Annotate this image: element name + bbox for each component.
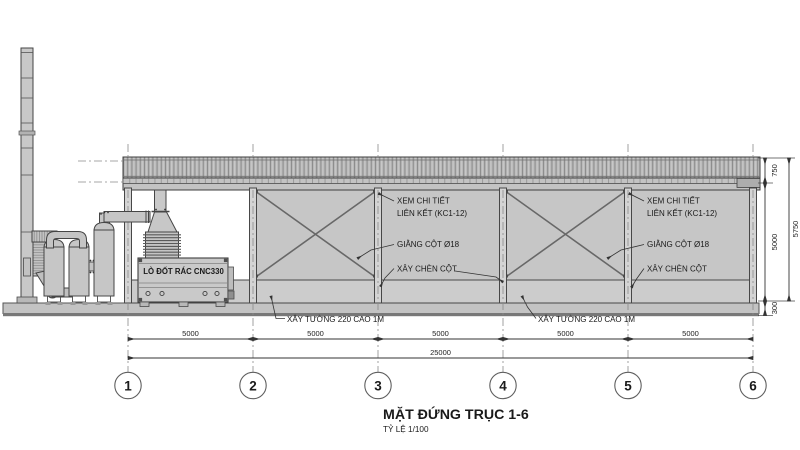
callout-brace: GIẰNG CỘT Ø18: [397, 240, 460, 249]
callout-detail-line2: LIÊN KẾT (KC1-12): [397, 208, 467, 218]
dimension-column-right: 750 5000 300 5750: [758, 158, 800, 316]
callout-low-wall-label: XÂY TƯỜNG 220 CAO 1M: [287, 315, 384, 324]
tank-bridge-pipe: [47, 232, 87, 249]
grid-bubble-5: 5: [624, 379, 632, 394]
grid-bubbles: 1 2 3 4 5 6: [115, 372, 766, 398]
dim-bay-3-4: 5000: [432, 329, 449, 338]
dim-roof-height: 750: [770, 164, 779, 177]
dimension-row-bays: 5000 5000 5000 5000 5000: [128, 329, 753, 339]
callout-detail-line1: XEM CHI TIẾT: [647, 196, 700, 206]
scale-note: TỶ LỆ 1/100: [383, 423, 429, 434]
callout-brace: GIẰNG CỘT Ø18: [647, 240, 710, 249]
dim-plinth-height: 300: [770, 302, 779, 315]
flue-funnel: [148, 212, 177, 232]
grid-bubble-1: 1: [124, 379, 132, 394]
callout-infill: XÂY CHÈN CỘT: [647, 265, 707, 274]
scrubber-tank-1: [44, 240, 64, 306]
scrubber-tank-2: [69, 240, 89, 306]
dim-bay-2-3: 5000: [307, 329, 324, 338]
elevation-drawing: LÒ ĐỐT RÁC CNC330 XEM CHI TIẾT LIÊN KẾT …: [0, 0, 800, 450]
grid-bubble-4: 4: [499, 379, 507, 394]
grid-bubble-2: 2: [249, 379, 257, 394]
drawing-sheet: LÒ ĐỐT RÁC CNC330 XEM CHI TIẾT LIÊN KẾT …: [0, 0, 800, 450]
callout-detail-line1: XEM CHI TIẾT: [397, 196, 450, 206]
chimney-flange: [19, 131, 35, 135]
scrubber-tank-3: [94, 213, 114, 305]
callout-infill: XÂY CHÈN CỘT: [397, 265, 457, 274]
side-attachment: [228, 267, 234, 290]
grid-bubble-6: 6: [749, 379, 757, 394]
heat-exchanger-fins: [146, 232, 179, 258]
grid-bubble-3: 3: [374, 379, 382, 394]
eave-end-cap: [737, 178, 760, 187]
dim-bay-5-6: 5000: [682, 329, 699, 338]
incinerator: LÒ ĐỐT RÁC CNC330: [138, 190, 234, 307]
dim-wall-height: 5000: [770, 234, 779, 251]
dim-bay-4-5: 5000: [557, 329, 574, 338]
dim-bay-1-2: 5000: [182, 329, 199, 338]
chimney-base: [17, 297, 37, 303]
incinerator-body: [138, 258, 228, 302]
callout-low-wall-label: XÂY TƯỜNG 220 CAO 1M: [538, 315, 635, 324]
drawing-title: MẶT ĐỨNG TRỤC 1-6: [383, 405, 529, 423]
dimension-row-total: 25000: [128, 348, 753, 358]
eave-beam: [123, 178, 760, 190]
roof: [123, 157, 760, 178]
dim-total-width: 25000: [430, 348, 451, 357]
flue-cross-pipe: [100, 211, 150, 224]
incinerator-label: LÒ ĐỐT RÁC CNC330: [143, 266, 224, 276]
dim-total-height: 5750: [791, 221, 800, 238]
callout-detail-line2: LIÊN KẾT (KC1-12): [647, 208, 717, 218]
chimney-door: [24, 258, 31, 276]
